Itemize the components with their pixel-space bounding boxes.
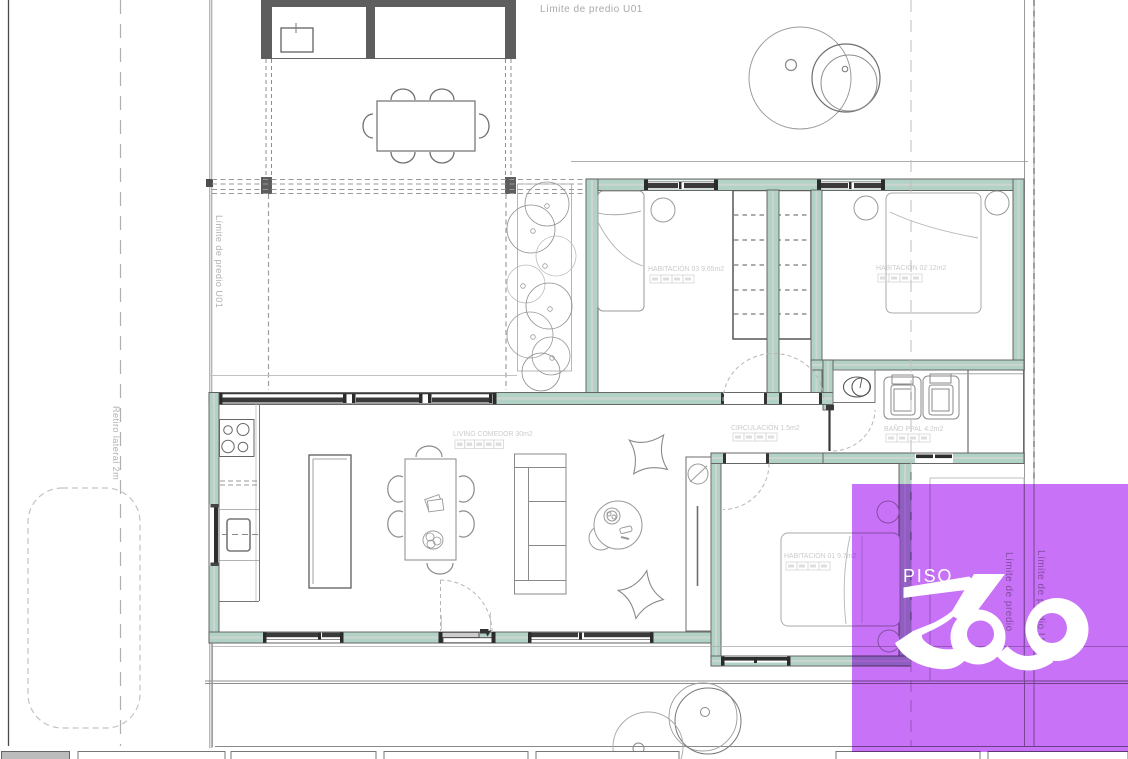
svg-text:Límite de predio U01: Límite de predio U01 — [214, 215, 224, 308]
svg-text:HABITACIÓN 03 9.65m2: HABITACIÓN 03 9.65m2 — [648, 264, 724, 273]
svg-text:HABITACIÓN 01 9.7m2: HABITACIÓN 01 9.7m2 — [784, 551, 856, 560]
svg-text:LIVING COMEDOR 30m2: LIVING COMEDOR 30m2 — [453, 431, 533, 438]
svg-text:BAÑO PPAL 4.2m2: BAÑO PPAL 4.2m2 — [884, 424, 944, 433]
svg-text:Límite de predio U01: Límite de predio U01 — [540, 4, 643, 15]
svg-text:CIRCULACIÓN 1.5m2: CIRCULACIÓN 1.5m2 — [731, 423, 800, 432]
svg-text:Retiro lateral 2m: Retiro lateral 2m — [111, 406, 121, 480]
